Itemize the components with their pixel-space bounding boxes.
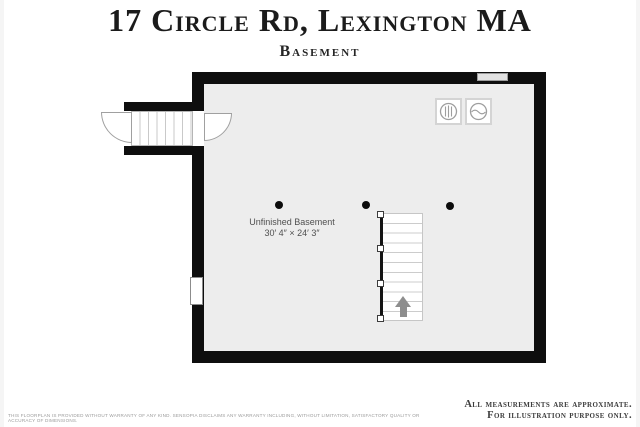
washer-icon (435, 98, 462, 125)
stair-railing (380, 214, 383, 320)
top-wall-window-symbol (477, 73, 508, 81)
up-arrow-shaft (400, 306, 407, 317)
page-left-edge (0, 0, 4, 427)
measurements-note-line1: All measurements are approximate. (464, 400, 632, 411)
dryer-icon (465, 98, 492, 125)
railing-post (377, 315, 384, 322)
railing-post (377, 245, 384, 252)
room-name: Unfinished Basement (212, 217, 372, 228)
support-column-dot (275, 201, 283, 209)
room-label: Unfinished Basement 30′ 4″ × 24′ 3″ (212, 217, 372, 239)
bulkhead-stairs (131, 111, 193, 146)
support-column-dot (362, 201, 370, 209)
support-column-dot (446, 202, 454, 210)
room-dimensions: 30′ 4″ × 24′ 3″ (212, 228, 372, 239)
measurements-note-line2: For illustration purpose only. (464, 411, 632, 422)
page-subtitle: Basement (0, 42, 640, 62)
floorplan-page: 17 Circle Rd, Lexington MA Basement Unfi… (0, 0, 640, 427)
railing-post (377, 211, 384, 218)
exterior-door-swing-icon (101, 112, 132, 143)
disclaimer-text: This floorplan is provided without warra… (8, 413, 448, 423)
page-right-edge (636, 0, 640, 427)
bulkhead-wall-bottom (124, 146, 192, 155)
left-wall-window-symbol (190, 277, 203, 305)
measurements-note: All measurements are approximate. For il… (464, 400, 632, 421)
bulkhead-wall-top (124, 102, 192, 111)
entry-wall-opening (192, 111, 204, 146)
page-title: 17 Circle Rd, Lexington MA (0, 1, 640, 39)
railing-post (377, 280, 384, 287)
